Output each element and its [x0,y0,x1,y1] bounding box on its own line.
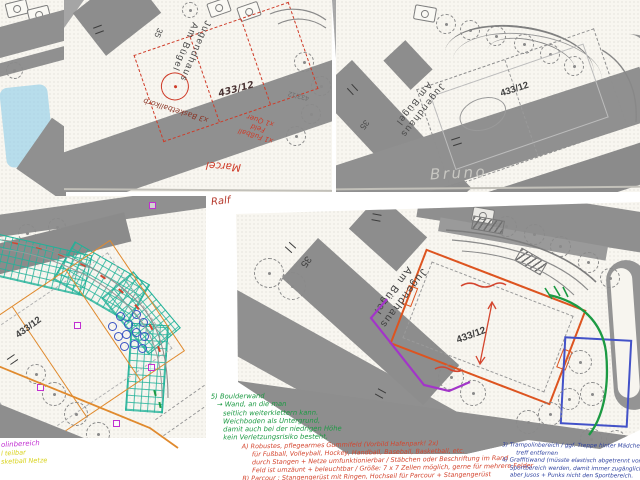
tree-icon [460,380,486,406]
tree-icon [436,14,456,34]
tree-icon [438,364,464,390]
note-block-blue-trampolin-graffiti: 3) Trampolinbereich / ggf. Treppe hinter… [502,442,640,480]
equals-symbol [285,242,296,253]
author-signature-marcel: Marcel [206,159,242,173]
scanned-plan-collage: 433/12 433/12 Jugendhaus Am Bügel 35 x3 … [0,0,640,480]
tree-icon [538,402,562,426]
tree-icon [42,382,66,406]
tree-icon [86,422,110,438]
tree-icon [524,224,545,245]
tree-icon [580,382,604,406]
margin-note-magenta: olinbereich [1,439,40,449]
pencil-dashed-line [163,401,206,436]
note-block-red-gummifeld: A) Robustes, pflegearmes Gummifeld (Vorb… [242,438,534,480]
plan-bottom-left [0,196,206,438]
note-line: aber Jusos + Punks nicht den Sportbereic… [502,473,640,480]
tree-icon [516,410,540,434]
margin-note-yellow-2: sketball Netze [1,456,48,466]
tree-icon [413,4,437,23]
author-signature-ralf: Ralf [210,195,230,208]
tree-icon [578,252,599,273]
plan-fragment-top-left [0,0,66,196]
equals-symbol [371,213,381,221]
magenta-corner-marker [74,322,81,329]
tree-icon [286,126,306,146]
tree-icon [568,350,592,374]
tree-icon [278,272,306,300]
plan-top-right [336,0,640,192]
tree-icon [5,0,30,18]
tree-icon [64,402,88,426]
tree-icon [301,104,321,124]
tree-icon [550,236,571,257]
note-block-green-boulderwand: 5) Boulderwand → Wand, an die man seitli… [211,391,342,442]
tree-icon [6,62,23,79]
magenta-corner-marker [113,420,120,427]
tree-icon [600,268,620,288]
author-signature-bruno: Bruno [430,163,488,184]
tree-icon [558,388,580,410]
magenta-corner-marker [148,364,155,371]
building-jugendhaus [73,0,161,56]
magenta-corner-marker [149,202,156,209]
steps-symbol [514,248,547,276]
tree-icon [26,364,46,384]
magenta-corner-marker [37,384,44,391]
